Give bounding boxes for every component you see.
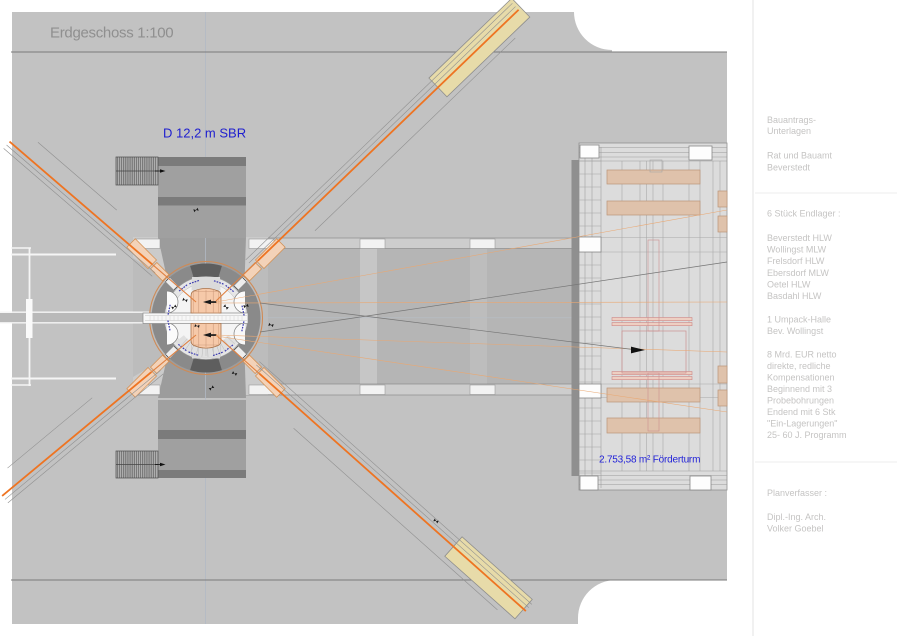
svg-text:6 Stück Endlager :: 6 Stück Endlager : bbox=[767, 209, 841, 219]
svg-text:Beginnend mit 3: Beginnend mit 3 bbox=[767, 384, 832, 394]
svg-text:2.753,58 m² Förderturm: 2.753,58 m² Förderturm bbox=[599, 455, 700, 466]
svg-text:8 Mrd. EUR netto: 8 Mrd. EUR netto bbox=[767, 350, 837, 360]
svg-text:Oetel HLW: Oetel HLW bbox=[767, 280, 811, 290]
svg-text:Bauantrags-: Bauantrags- bbox=[767, 115, 816, 125]
svg-text:direkte, redliche: direkte, redliche bbox=[767, 361, 831, 371]
svg-text:D 12,2 m SBR: D 12,2 m SBR bbox=[163, 126, 246, 141]
svg-text:Basdahl HLW: Basdahl HLW bbox=[767, 291, 822, 301]
svg-text:Frelsdorf HLW: Frelsdorf HLW bbox=[767, 256, 825, 266]
svg-text:Bev. Wollingst: Bev. Wollingst bbox=[767, 326, 824, 336]
svg-text:Volker Goebel: Volker Goebel bbox=[767, 524, 824, 534]
svg-text:1 Umpack-Halle: 1 Umpack-Halle bbox=[767, 315, 831, 325]
svg-text:Beverstedt: Beverstedt bbox=[767, 163, 811, 173]
svg-text:Endend mit 6 Stk: Endend mit 6 Stk bbox=[767, 407, 836, 417]
svg-text:Rat und Bauamt: Rat und Bauamt bbox=[767, 151, 833, 161]
svg-text:Wollingst MLW: Wollingst MLW bbox=[767, 245, 827, 255]
svg-text:Kompensationen: Kompensationen bbox=[767, 373, 835, 383]
svg-text:25- 60 J. Programm: 25- 60 J. Programm bbox=[767, 430, 847, 440]
svg-text:"Ein-Lagerungen": "Ein-Lagerungen" bbox=[767, 419, 837, 429]
svg-text:Beverstedt HLW: Beverstedt HLW bbox=[767, 233, 832, 243]
svg-text:Erdgeschoss 1:100: Erdgeschoss 1:100 bbox=[50, 25, 173, 42]
svg-text:Unterlagen: Unterlagen bbox=[767, 126, 811, 136]
svg-text:Planverfasser :: Planverfasser : bbox=[767, 488, 827, 498]
svg-text:Ebersdorf MLW: Ebersdorf MLW bbox=[767, 268, 829, 278]
svg-text:Dipl.-Ing. Arch.: Dipl.-Ing. Arch. bbox=[767, 512, 826, 522]
svg-text:Probebohrungen: Probebohrungen bbox=[767, 396, 834, 406]
